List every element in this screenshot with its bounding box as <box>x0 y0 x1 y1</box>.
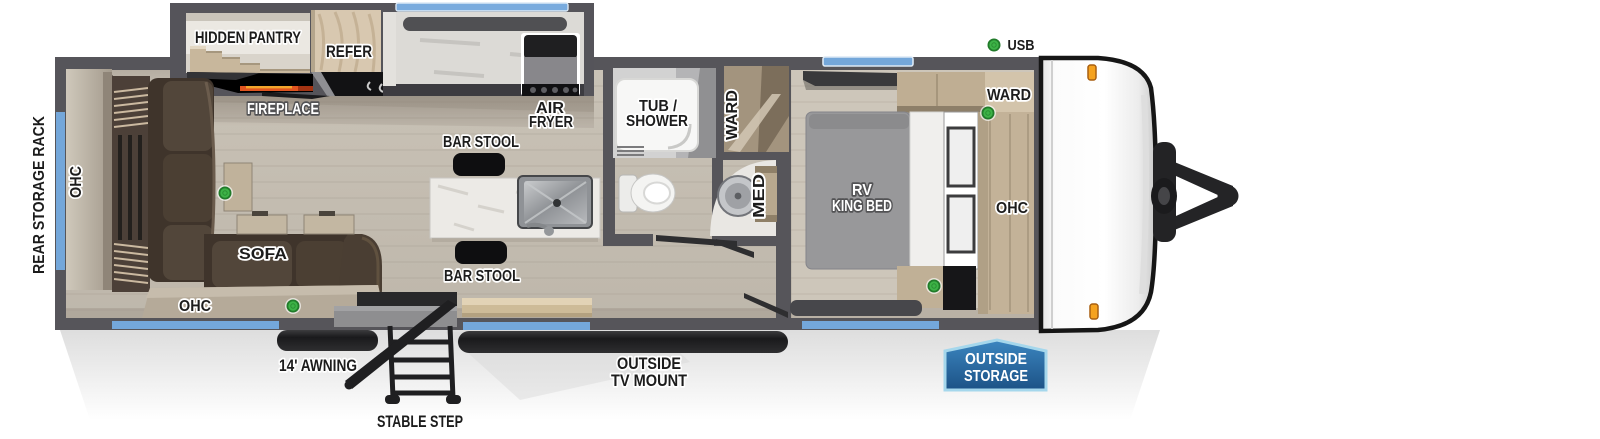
svg-text:REFER: REFER <box>326 42 372 61</box>
svg-text:MED: MED <box>751 174 768 218</box>
svg-text:TV MOUNT: TV MOUNT <box>611 371 688 390</box>
svg-text:SOFA: SOFA <box>239 246 287 263</box>
svg-text:STORAGE: STORAGE <box>964 368 1028 385</box>
svg-text:14' AWNING: 14' AWNING <box>279 356 357 375</box>
svg-text:RV: RV <box>852 182 872 199</box>
svg-text:OHC: OHC <box>996 200 1028 217</box>
svg-text:REAR STORAGE RACK: REAR STORAGE RACK <box>31 116 48 274</box>
svg-text:FRYER: FRYER <box>529 114 573 131</box>
svg-text:USB: USB <box>1008 37 1035 54</box>
svg-text:BAR STOOL: BAR STOOL <box>443 134 519 151</box>
svg-text:WARD: WARD <box>987 87 1031 104</box>
svg-text:STABLE STEP: STABLE STEP <box>377 412 463 431</box>
svg-text:BAR STOOL: BAR STOOL <box>444 268 520 285</box>
svg-text:HIDDEN PANTRY: HIDDEN PANTRY <box>195 28 301 47</box>
svg-text:OUTSIDE: OUTSIDE <box>965 351 1027 368</box>
svg-text:OHC: OHC <box>68 166 85 198</box>
svg-text:OHC: OHC <box>179 298 211 315</box>
svg-text:WARD: WARD <box>724 90 741 140</box>
svg-text:SHOWER: SHOWER <box>626 113 688 130</box>
svg-text:KING BED: KING BED <box>832 198 892 215</box>
svg-text:FIREPLACE: FIREPLACE <box>247 101 319 118</box>
